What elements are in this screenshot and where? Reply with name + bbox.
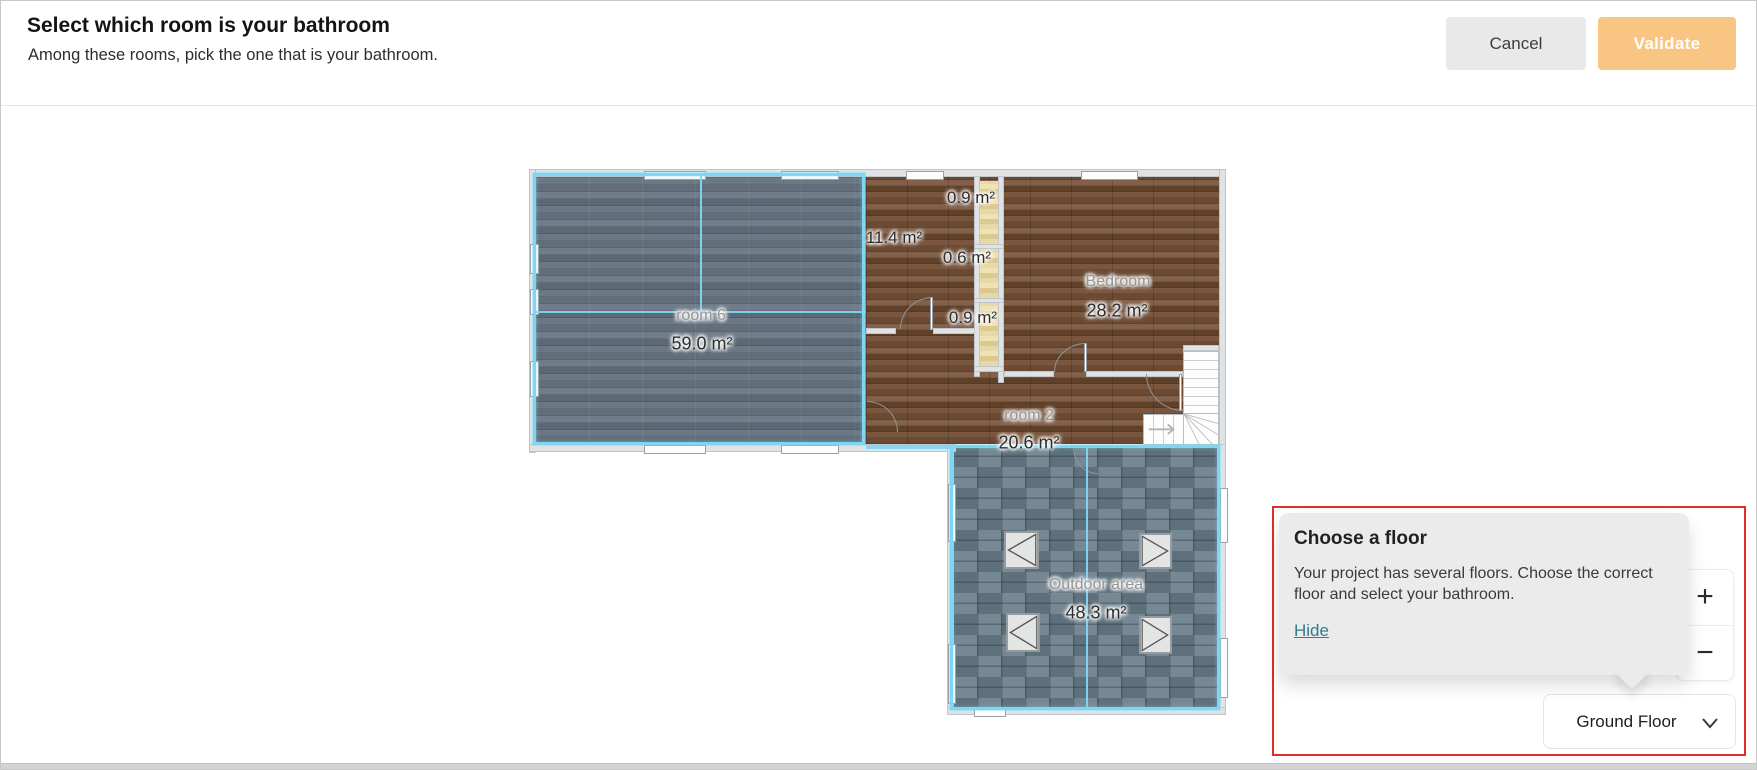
plus-icon: + [1696,580,1714,614]
room2-name-label: room 2 [1004,407,1054,425]
stairs-lower-flight [1143,414,1184,445]
header: Select which room is your bathroom Among… [1,1,1756,106]
door-leaf [1084,343,1087,372]
room6-area-label: 59.0 m² [671,334,732,355]
bedroom-name-label: Bedroom [1086,273,1151,291]
window [906,171,944,180]
bottom-edge-strip [1,763,1756,770]
window [1220,488,1228,543]
tooltip-title: Choose a floor [1294,528,1673,550]
tooltip-body: Your project has several floors. Choose … [1294,563,1666,605]
choose-floor-tooltip: Choose a floor Your project has several … [1279,513,1689,675]
outdoor-area-label: 48.3 m² [1065,603,1126,624]
floor-selector-dropdown[interactable]: Ground Floor [1543,694,1736,749]
stairs-winder [1183,413,1219,445]
outdoor-name-label: Outdoor area [1049,576,1143,594]
page-subtitle: Among these rooms, pick the one that is … [28,46,438,65]
floor-plan-canvas[interactable]: room 6 59.0 m² 11.4 m² 0.9 m² 0.6 m² 0.9… [1,107,1756,770]
wall-right [1219,169,1226,453]
cancel-button[interactable]: Cancel [1446,17,1586,70]
stairs-upper-flight [1183,351,1219,415]
bedroom-area-label: 28.2 m² [1086,301,1147,322]
door-leaf [1179,374,1182,411]
room6-name-label: room 6 [676,307,726,325]
floor-selector-value: Ground Floor [1576,712,1676,732]
closet-mid-area-label: 0.6 m² [943,248,991,268]
window [974,709,1006,717]
wall-hall-bottom-b [933,328,976,334]
window [781,445,839,454]
selection-edge-room2 [866,445,953,449]
wall-bedroom-bottom-a [1004,371,1054,377]
selection-divider-line [700,176,702,313]
window [1081,171,1138,180]
tooltip-hide-link[interactable]: Hide [1294,621,1329,641]
minus-icon: − [1696,636,1714,670]
page-title: Select which room is your bathroom [27,14,390,38]
wall-closet-right [998,176,1004,383]
window [1220,638,1228,698]
wall-hall-bottom-a [866,328,896,334]
stairs-winder-lines [1184,414,1218,444]
chevron-down-icon [1701,716,1719,734]
room-selection-modal: Select which room is your bathroom Among… [0,0,1757,770]
stairs-direction-arrow [1144,415,1183,444]
window [644,445,706,454]
validate-button[interactable]: Validate [1598,17,1736,70]
door-leaf [930,297,933,330]
wall-closet-bottom [974,366,1004,372]
wall-closet-divider-2 [974,298,1004,303]
closet-bottom-area-label: 0.9 m² [949,308,997,328]
room2-area-label: 20.6 m² [998,433,1059,454]
closet-top-area-label: 0.9 m² [947,188,995,208]
hall-area-label: 11.4 m² [866,228,922,248]
